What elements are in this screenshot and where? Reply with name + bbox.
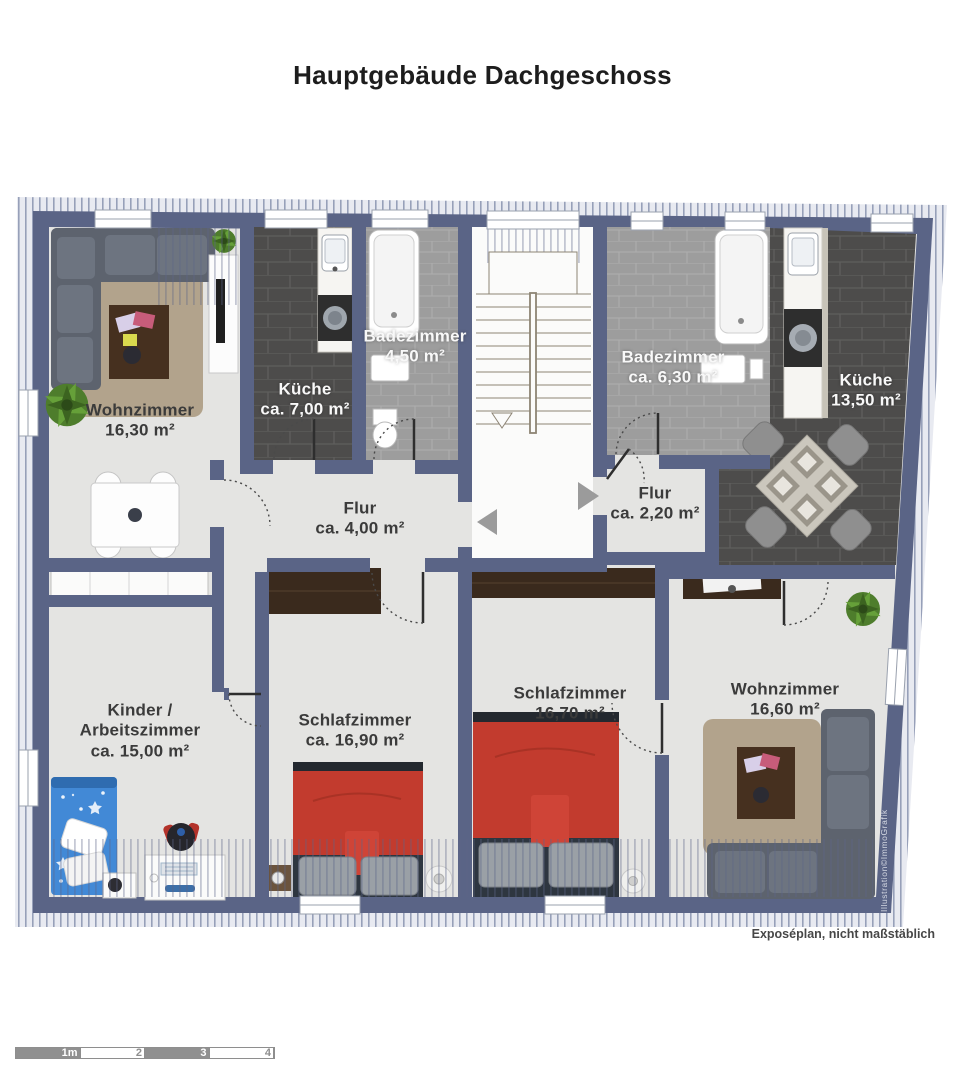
floor-plan-svg <box>15 197 950 927</box>
wardrobe-brown <box>269 568 381 614</box>
scale-segment: 2 <box>80 1048 146 1058</box>
room-label-kueche-rechts: Küche 13,50 m² <box>831 371 901 412</box>
window <box>487 211 579 229</box>
coffee-table <box>737 747 795 819</box>
room-label-wohnzimmer-rechts: Wohnzimmer 16,60 m² <box>731 680 839 721</box>
floorplan-page: Hauptgebäude Dachgeschoss <box>0 0 965 1080</box>
window <box>885 649 906 706</box>
scale-bar: 1m 2 3 4 <box>15 1047 275 1059</box>
room-label-flur-links: Flur ca. 4,00 m² <box>315 499 404 540</box>
window <box>265 210 327 228</box>
kitchen-counter <box>784 228 828 418</box>
room-label-flur-rechts: Flur ca. 2,20 m² <box>610 484 699 525</box>
bathtub <box>369 230 419 338</box>
window <box>871 214 913 232</box>
room-label-badezimmer-rechts: Badezimmer ca. 6,30 m² <box>621 348 724 389</box>
wardrobe-brown <box>470 568 655 598</box>
room-label-wohnzimmer-links: Wohnzimmer 16,30 m² <box>86 401 194 442</box>
scale-segment: 1m <box>16 1048 80 1058</box>
window <box>95 210 151 228</box>
coffee-table <box>109 305 169 379</box>
scale-segment: 3 <box>145 1048 209 1058</box>
window <box>545 896 605 914</box>
kitchen-counter <box>318 228 352 352</box>
scale-segment: 4 <box>209 1048 275 1058</box>
dining-table <box>91 472 179 558</box>
page-title: Hauptgebäude Dachgeschoss <box>0 60 965 91</box>
footer-disclaimer: Exposéplan, nicht maßstäblich <box>752 927 935 941</box>
window <box>19 750 38 806</box>
bathtub <box>715 230 768 344</box>
toilet <box>373 409 397 448</box>
knee-wall-hatch <box>49 839 873 897</box>
window <box>300 896 360 914</box>
room-label-schlafzimmer-links: Schlafzimmer ca. 16,90 m² <box>299 711 412 752</box>
room-label-schlafzimmer-mitte: Schlafzimmer 16,70 m² <box>514 684 627 725</box>
illustrator-watermark: Illustration©ImmoGrafik <box>879 809 889 912</box>
room-label-kinder-arbeitszimmer: Kinder / Arbeitszimmer ca. 15,00 m² <box>80 700 201 761</box>
window <box>19 390 38 436</box>
window <box>725 212 765 230</box>
closet-white <box>51 568 208 596</box>
window <box>631 212 663 230</box>
knee-wall-hatch <box>158 227 240 305</box>
window <box>372 210 428 228</box>
room-label-kueche-links: Küche ca. 7,00 m² <box>260 380 349 421</box>
room-label-badezimmer-links: Badezimmer 4,50 m² <box>363 327 466 368</box>
